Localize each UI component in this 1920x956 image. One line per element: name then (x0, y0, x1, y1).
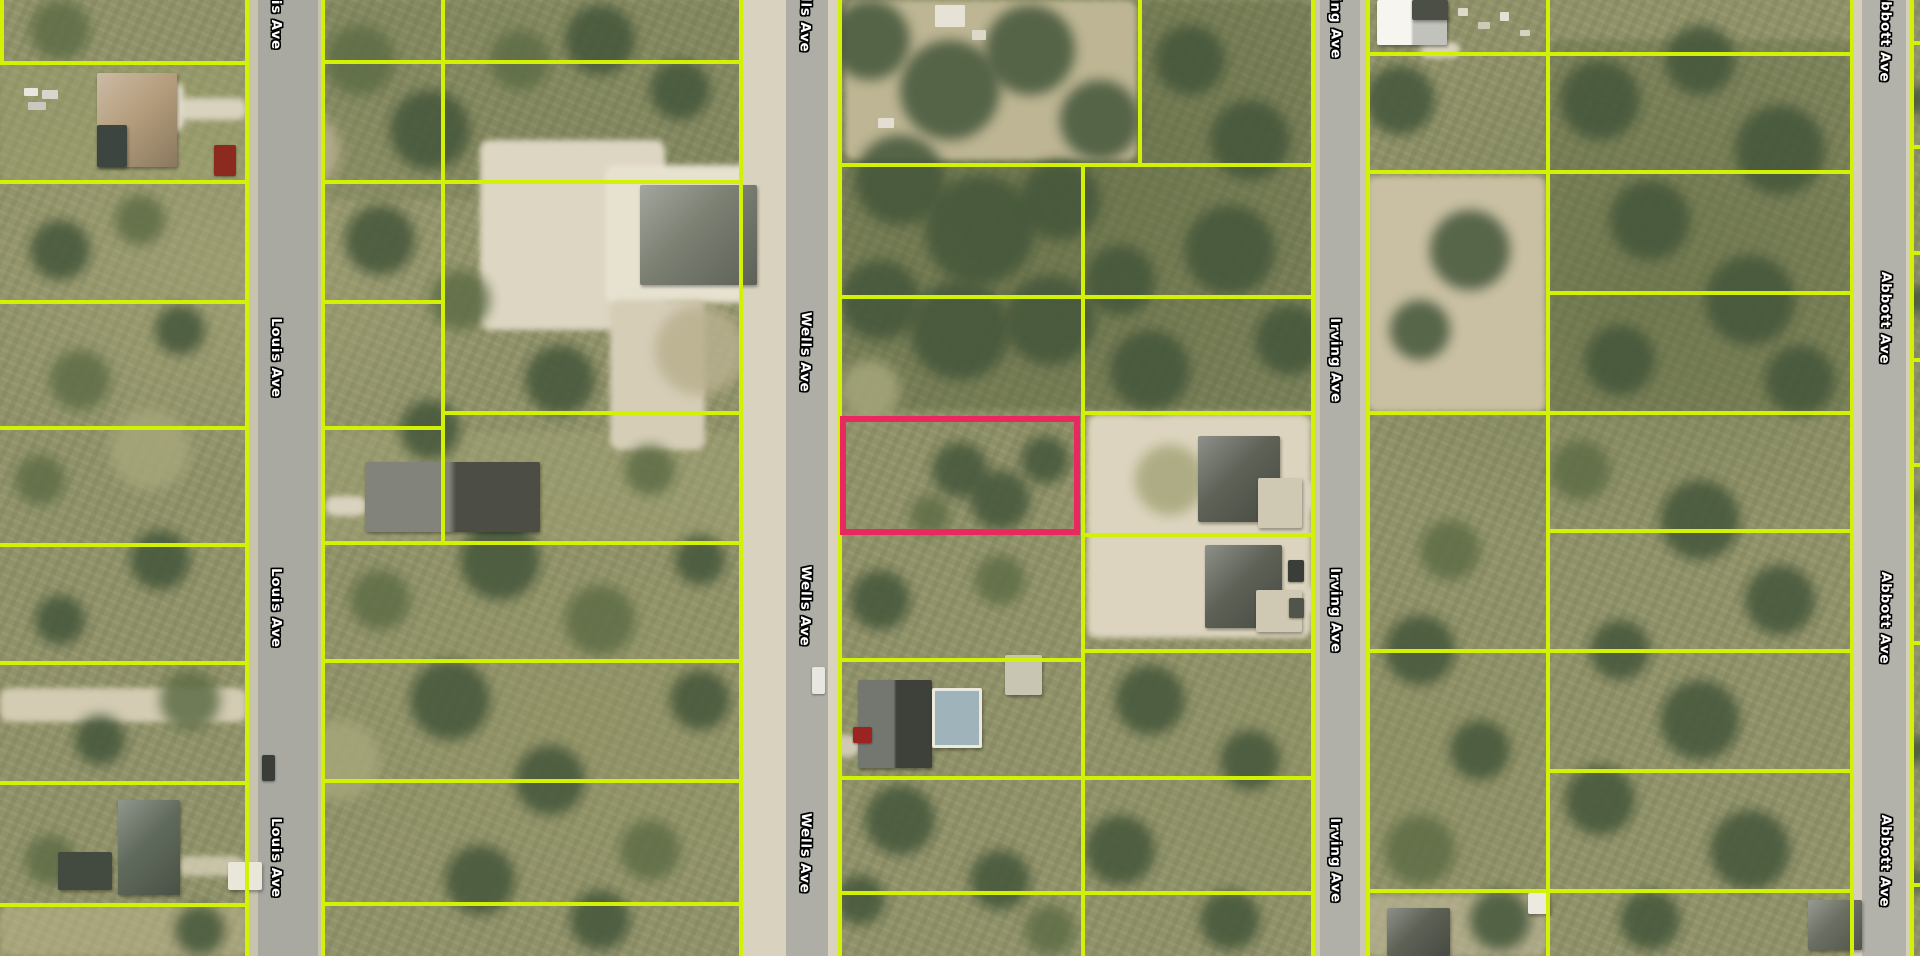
street-label: Abbott Ave (1876, 815, 1894, 908)
parcel-line-horizontal (1912, 41, 1920, 45)
vehicle (853, 727, 872, 743)
parcel-line-horizontal (1548, 529, 1852, 533)
parcel-line-horizontal (840, 163, 1313, 167)
parcel-line-horizontal (840, 776, 1313, 780)
street-label: Irving Ave (1327, 568, 1344, 653)
parcel-line-horizontal (1368, 52, 1852, 56)
yard-object (28, 102, 46, 110)
parcel-line-horizontal (0, 781, 247, 785)
parcel-line-horizontal (840, 295, 1313, 299)
yard-object (878, 118, 894, 128)
vehicle (1289, 598, 1304, 618)
parcel-line-horizontal (0, 426, 247, 430)
parcel-line-horizontal (0, 61, 247, 65)
parcel-line-vertical (245, 0, 249, 956)
yard-object (24, 88, 38, 96)
parcel-line-vertical (1081, 165, 1085, 956)
parcel-line-horizontal (1083, 649, 1313, 653)
shed (58, 852, 112, 890)
parcel-line-horizontal (840, 891, 1313, 895)
parcel-line-horizontal (443, 411, 741, 415)
parcel-line-horizontal (323, 659, 741, 663)
parcel-line-horizontal (323, 426, 443, 430)
parcel-line-horizontal (1368, 170, 1852, 174)
highlighted-parcel-outline[interactable] (840, 416, 1080, 535)
street-label: Abbott Ave (1876, 572, 1894, 665)
vehicle (1288, 560, 1304, 582)
parcel-line-vertical (1910, 0, 1914, 956)
street-label: Abbott Ave (1876, 0, 1894, 83)
parcel-line-horizontal (0, 180, 247, 184)
parcel-line-horizontal (323, 60, 741, 64)
house-roof (118, 800, 180, 895)
street-label: Wells Ave (797, 566, 814, 647)
street-label: Abbott Ave (1876, 272, 1894, 365)
concrete-pad (1258, 478, 1302, 528)
parcel-line-horizontal (1912, 463, 1920, 467)
parcel-line-vertical (1311, 0, 1315, 956)
yard-object (972, 30, 986, 40)
aerial-parcel-map[interactable]: Louis AveLouis AveLouis AveLouis AveWell… (0, 0, 1920, 956)
parcel-line-horizontal (0, 543, 247, 547)
parcel-line-horizontal (0, 661, 247, 665)
parcel-line-vertical (0, 0, 4, 63)
parcel-line-horizontal (1912, 641, 1920, 645)
street-label: Irving Ave (1327, 318, 1344, 403)
vehicle (214, 145, 236, 176)
parcel-line-horizontal (1548, 769, 1852, 773)
yard-object (42, 90, 58, 99)
parcel-line-vertical (1850, 0, 1854, 956)
parcel-line-vertical (321, 0, 325, 956)
street-label: Louis Ave (268, 818, 284, 898)
parcel-line-vertical (739, 0, 743, 956)
parcel-line-horizontal (323, 779, 741, 783)
parcel-line-horizontal (1083, 533, 1313, 537)
parcel-line-horizontal (1912, 883, 1920, 887)
street-label: Irving Ave (1327, 818, 1344, 903)
street-label: Irving Ave (1327, 0, 1344, 59)
parcel-line-vertical (1138, 0, 1142, 165)
parcel-line-horizontal (323, 541, 741, 545)
vehicle (262, 755, 275, 781)
parcel-line-horizontal (1912, 358, 1920, 362)
parcel-line-horizontal (323, 902, 741, 906)
street-label: Louis Ave (268, 0, 284, 50)
parcel-line-horizontal (1368, 649, 1852, 653)
street-label: Wells Ave (797, 312, 814, 393)
street-label: Louis Ave (268, 568, 284, 648)
parcel-line-horizontal (1083, 411, 1313, 415)
street-label: Louis Ave (268, 318, 284, 398)
pool-enclosure (932, 688, 982, 748)
yard-object (1478, 22, 1490, 29)
yard-object (1500, 12, 1509, 21)
house-roof (365, 462, 540, 532)
roof-section (1412, 0, 1448, 20)
parcel-line-horizontal (323, 180, 741, 184)
parcel-line-horizontal (1368, 889, 1852, 893)
street-label: Wells Ave (797, 813, 814, 894)
parcel-line-horizontal (1368, 411, 1852, 415)
house-roof (1387, 908, 1450, 956)
parcel-line-horizontal (0, 903, 247, 907)
parcel-line-vertical (1546, 0, 1550, 956)
vehicle (812, 667, 825, 694)
pool-screen (97, 125, 127, 167)
parcel-line-vertical (1366, 0, 1370, 956)
yard-object (1458, 8, 1468, 16)
parcel-line-vertical (441, 0, 445, 543)
street-label: Wells Ave (797, 0, 814, 53)
parcel-line-horizontal (1912, 251, 1920, 255)
parcel-line-horizontal (840, 658, 1083, 662)
parcel-line-horizontal (0, 300, 247, 304)
yard-object (1520, 30, 1530, 36)
parcel-line-horizontal (1548, 291, 1852, 295)
house-roof (858, 680, 932, 768)
parcel-line-horizontal (323, 300, 443, 304)
yard-object (935, 5, 965, 27)
parcel-line-horizontal (1912, 145, 1920, 149)
